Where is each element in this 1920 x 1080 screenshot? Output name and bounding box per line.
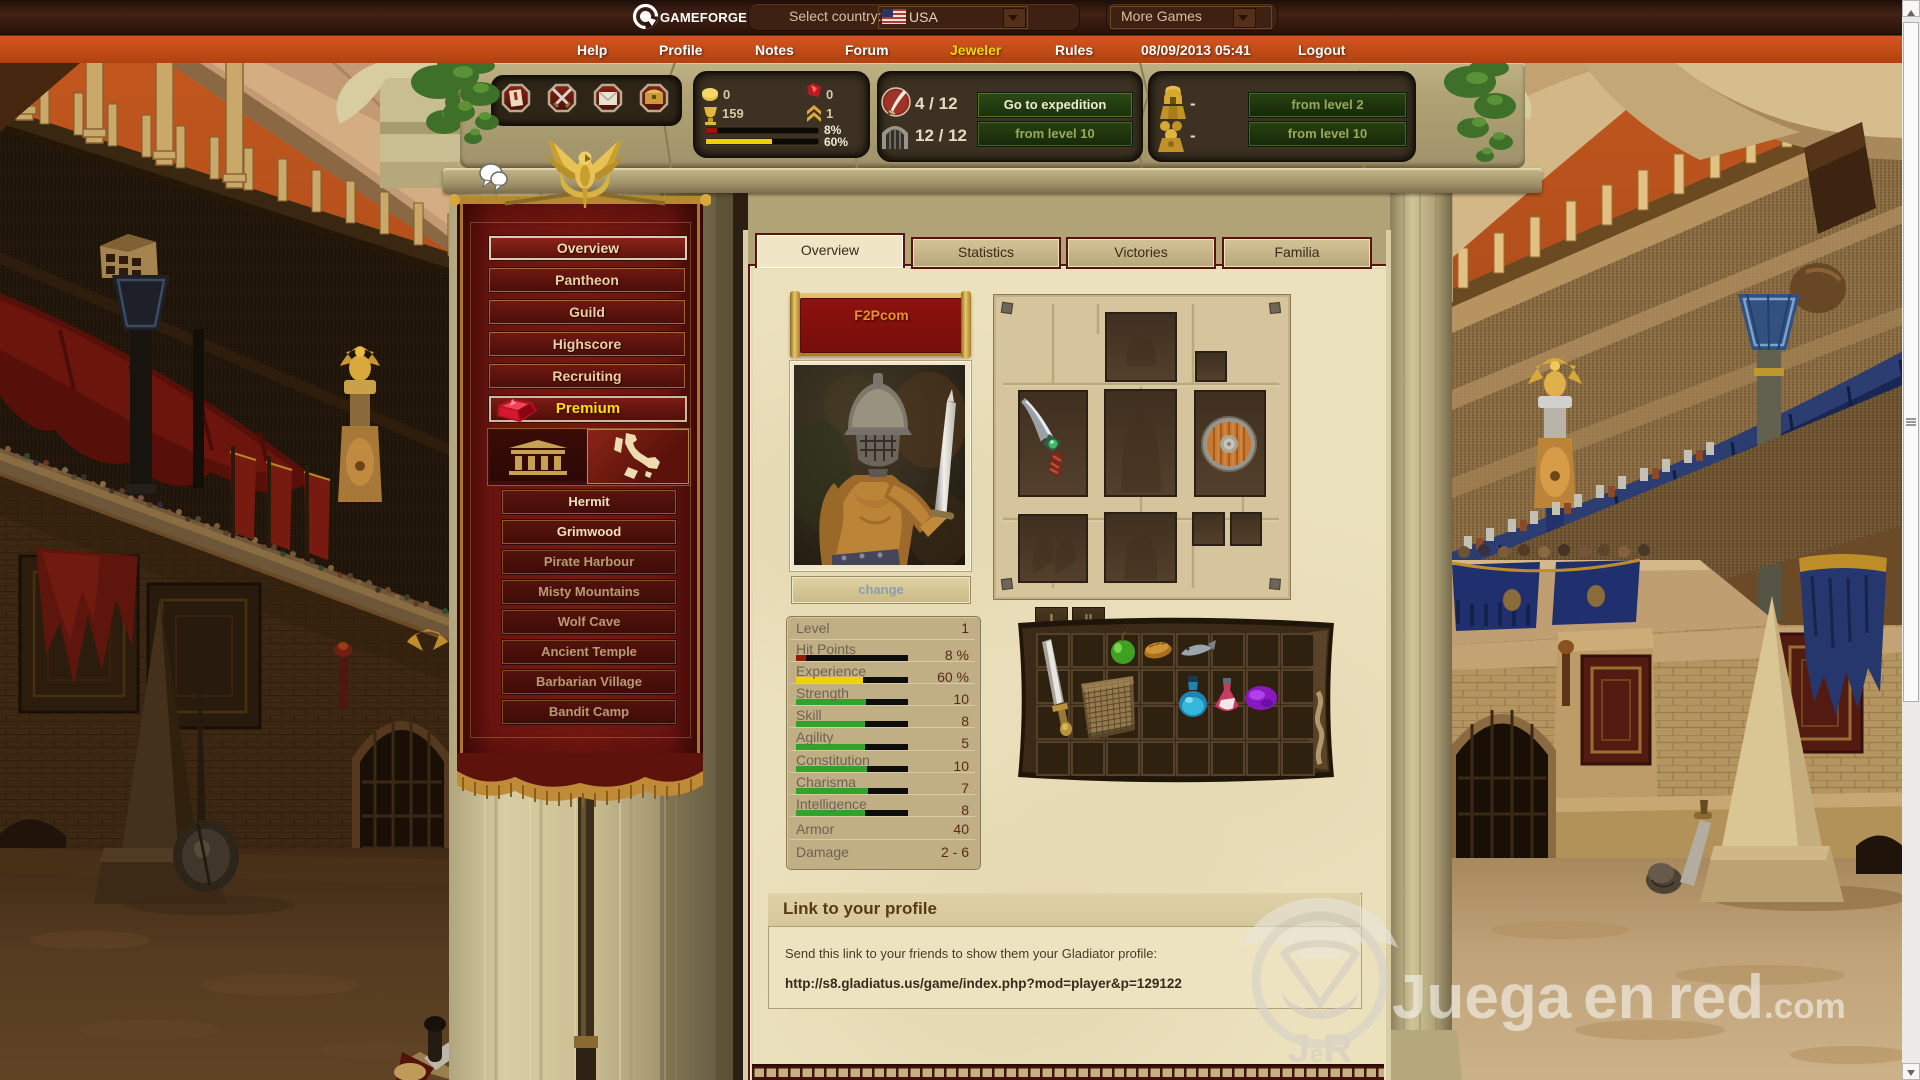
svg-text:JeR: JeR <box>1288 1027 1353 1071</box>
